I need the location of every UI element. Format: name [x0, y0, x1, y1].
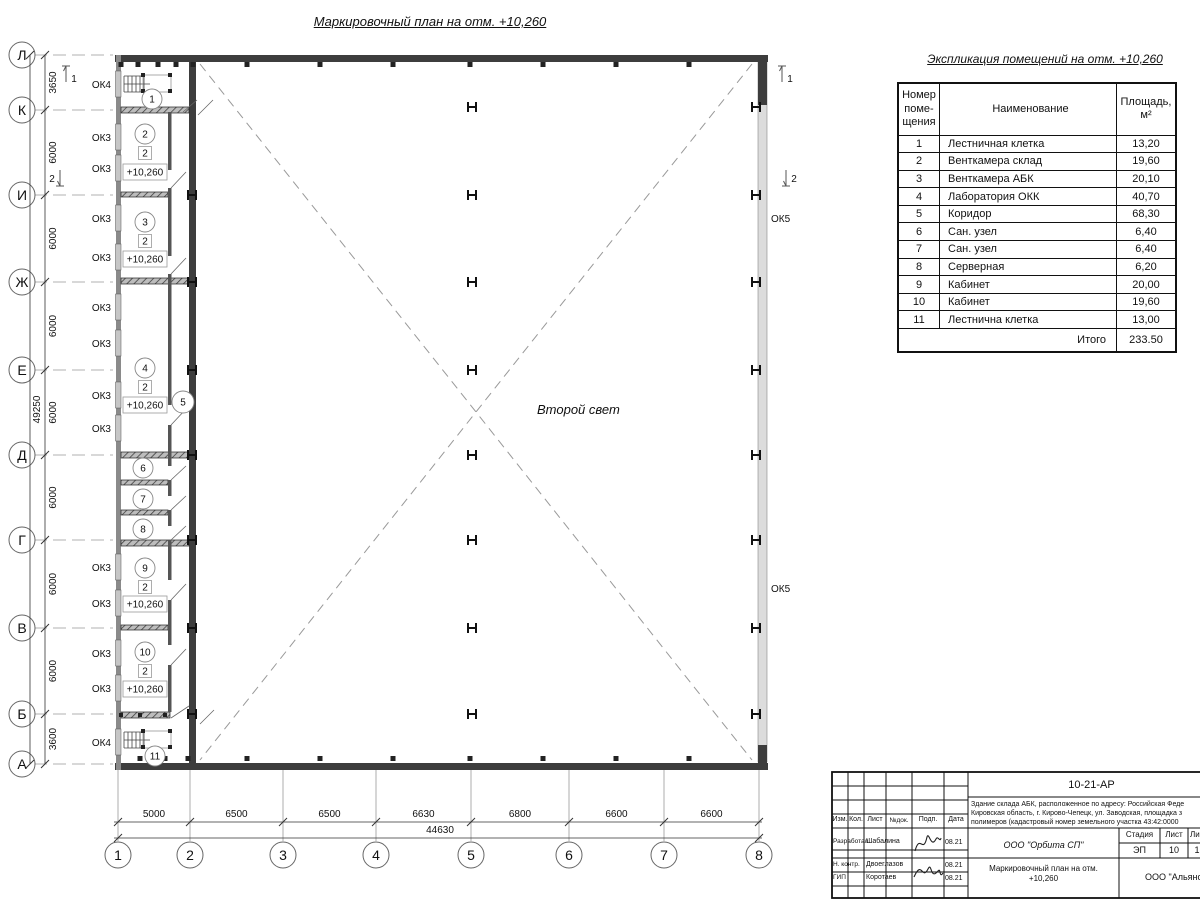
column-square — [136, 62, 141, 67]
section-mark-number: 1 — [787, 74, 793, 85]
axis-bubble-label: Г — [18, 532, 26, 548]
door-leaf — [171, 584, 186, 600]
partition-wall — [121, 192, 168, 197]
doc-number: 10-21-АР — [968, 779, 1200, 791]
dim-text: 6000 — [48, 572, 59, 595]
mezzanine-mark: 2 — [142, 583, 148, 594]
corridor-wall-segment — [168, 188, 172, 256]
dim-text: 6600 — [700, 809, 723, 820]
wall-right-glazing — [758, 62, 767, 762]
second-light-label: Второй свет — [537, 402, 620, 417]
dim-text-total: 44630 — [426, 825, 454, 836]
room-number: 4 — [142, 364, 148, 375]
column-square — [156, 62, 161, 67]
room-number-cell: 6 — [898, 223, 940, 241]
wall — [115, 55, 768, 62]
room-number-cell: 10 — [898, 293, 940, 311]
stage-label: Стадия — [1119, 830, 1160, 839]
dim-text: 3600 — [48, 727, 59, 750]
steel-column-icon — [468, 623, 476, 633]
room-name-cell: Сан. узел — [940, 241, 1117, 259]
column-square — [168, 73, 172, 77]
axis-bubble-label: Ж — [16, 274, 29, 290]
axis-bubble-label: Д — [17, 447, 27, 463]
section-mark-number: 2 — [791, 174, 797, 185]
column-square — [318, 62, 323, 67]
room-number: 2 — [142, 130, 148, 141]
wall — [758, 55, 767, 105]
partition-wall — [121, 510, 168, 515]
window-opening — [116, 205, 122, 231]
stair-opening — [143, 731, 171, 748]
window-opening — [116, 155, 122, 181]
column-square — [168, 89, 172, 93]
table-row: 5Коридор68,30 — [898, 205, 1176, 223]
table-row: 1Лестничная клетка13,20 — [898, 135, 1176, 153]
column-square — [186, 756, 191, 761]
section-mark-number: 2 — [49, 174, 55, 185]
room-name-cell: Кабинет — [940, 276, 1117, 294]
axis-bubble-label: И — [17, 187, 27, 203]
person-name: Шабалина — [866, 838, 910, 846]
column-square — [119, 62, 124, 67]
person-date: 08.21 — [945, 839, 968, 847]
dim-text: 6000 — [48, 401, 59, 424]
room-name-cell: Лаборатория ОКК — [940, 188, 1117, 206]
corridor-wall-segment — [168, 540, 172, 580]
project-desc-line: полимеров (кадастровый номер земельного … — [971, 819, 1200, 827]
sheet-title: Маркировочный план на отм. +10,260 — [968, 864, 1119, 884]
room-area-cell: 20,10 — [1117, 170, 1177, 188]
level-mark: +10,260 — [127, 168, 164, 179]
corridor-wall-segment — [168, 458, 172, 466]
col-header-name: Наименование — [940, 83, 1117, 135]
room-number-cell: 11 — [898, 311, 940, 329]
corridor-wall-segment — [168, 510, 172, 526]
room-number-cell: 8 — [898, 258, 940, 276]
room-area-cell: 19,60 — [1117, 293, 1177, 311]
axis-bubble-label: А — [17, 756, 27, 772]
stamp-header-kol: Кол. — [848, 816, 864, 824]
window-mark-label: ОК3 — [92, 563, 112, 574]
window-mark-label: ОК3 — [92, 133, 112, 144]
column-square — [174, 62, 179, 67]
stair-opening — [143, 75, 171, 92]
window-opening — [116, 675, 122, 701]
project-desc-line: Кировская область, г. Кирово-Чепецк, ул.… — [971, 810, 1200, 818]
room-number-cell: 4 — [898, 188, 940, 206]
floor-plan: ЛКИЖЕДГВБА123456783650600060006000600060… — [0, 0, 830, 900]
room-area-cell: 6,40 — [1117, 241, 1177, 259]
room-name-cell: Лестнична клетка — [940, 311, 1117, 329]
table-row: 7Сан. узел6,40 — [898, 241, 1176, 259]
steel-column-icon — [468, 102, 476, 112]
column-square — [141, 729, 145, 733]
column-square — [687, 756, 692, 761]
room-number-cell: 9 — [898, 276, 940, 294]
corridor-wall-segment — [168, 600, 172, 630]
room-number: 6 — [140, 464, 146, 475]
room-name-cell: Кабинет — [940, 293, 1117, 311]
room-area-cell: 13,00 — [1117, 311, 1177, 329]
sheets-label: Листов — [1190, 830, 1200, 839]
axis-bubble-label: 2 — [186, 847, 194, 863]
column-square — [687, 62, 692, 67]
table-row: 9Кабинет20,00 — [898, 276, 1176, 294]
mezzanine-mark: 2 — [142, 667, 148, 678]
corridor-wall-segment — [168, 480, 172, 496]
level-mark: +10,260 — [127, 600, 164, 611]
corridor-wall-segment — [168, 665, 172, 712]
axis-bubble-label: 4 — [372, 847, 380, 863]
window-mark-label: ОК3 — [92, 339, 112, 350]
window-opening — [116, 590, 122, 616]
col-header-number: Номер поме- щения — [898, 83, 940, 135]
dim-text: 6000 — [48, 314, 59, 337]
door-leaf — [171, 706, 189, 718]
room-area-cell: 6,20 — [1117, 258, 1177, 276]
window-mark-label: ОК3 — [92, 424, 112, 435]
room-number: 7 — [140, 495, 146, 506]
table-row: 2Венткамера склад19,60 — [898, 153, 1176, 171]
room-area-cell: 13,20 — [1117, 135, 1177, 153]
axis-bubble-label: Е — [17, 362, 26, 378]
column-square — [468, 756, 473, 761]
door-leaf — [171, 526, 186, 540]
dim-text: 6000 — [48, 141, 59, 164]
room-number-cell: 3 — [898, 170, 940, 188]
partition-wall — [121, 625, 168, 630]
room-name-cell: Венткамера склад — [940, 153, 1117, 171]
table-row: 8Серверная6,20 — [898, 258, 1176, 276]
table-total-row: Итого 233.50 — [898, 329, 1176, 352]
project-desc-line: Здание склада АБК, расположенное по адре… — [971, 801, 1200, 809]
column-square — [191, 62, 196, 67]
partition-wall — [121, 278, 189, 284]
dim-text: 6000 — [48, 486, 59, 509]
stamp-header-list: Лист — [864, 816, 886, 824]
wall — [115, 763, 768, 770]
column-square — [391, 756, 396, 761]
room-number-cell: 5 — [898, 205, 940, 223]
table-row: 11Лестнична клетка13,00 — [898, 311, 1176, 329]
table-row: 6Сан. узел6,40 — [898, 223, 1176, 241]
window-mark-label: ОК5 — [771, 214, 791, 225]
column-square — [138, 756, 143, 761]
explication-title: Экспликация помещений на отм. +10,260 — [915, 52, 1175, 66]
corridor-wall-segment — [168, 425, 172, 458]
window-mark-label: ОК4 — [92, 80, 112, 91]
window-opening — [116, 71, 122, 97]
dim-text: 6600 — [605, 809, 628, 820]
column-square — [614, 756, 619, 761]
door-leaf — [198, 100, 213, 115]
room-number: 9 — [142, 564, 148, 575]
axis-bubble-label: В — [17, 620, 26, 636]
corridor-wall-segment — [168, 274, 172, 405]
room-number: 10 — [139, 648, 151, 659]
window-mark-label: ОК3 — [92, 214, 112, 225]
axis-bubble-label: 6 — [565, 847, 573, 863]
person-name: Коротаев — [866, 874, 910, 882]
axis-bubble-label: Л — [17, 47, 26, 63]
explication-table: Номер поме- щения Наименование Площадь, … — [897, 82, 1177, 353]
sheet-value: 10 — [1160, 845, 1188, 855]
wall — [758, 745, 767, 770]
stamp-header-ndok: №док. — [886, 817, 912, 824]
steel-column-icon — [468, 450, 476, 460]
window-opening — [116, 124, 122, 150]
axis-bubble-label: 8 — [755, 847, 763, 863]
window-opening — [116, 640, 122, 666]
column-square — [168, 745, 172, 749]
mezzanine-mark: 2 — [142, 149, 148, 160]
door-leaf — [200, 710, 214, 724]
steel-column-icon — [468, 277, 476, 287]
door-leaf — [171, 649, 186, 665]
room-name-cell: Серверная — [940, 258, 1117, 276]
room-number-cell: 1 — [898, 135, 940, 153]
axis-bubble-label: 7 — [660, 847, 668, 863]
dim-text: 6630 — [412, 809, 435, 820]
room-name-cell: Лестничная клетка — [940, 135, 1117, 153]
window-mark-label: ОК5 — [771, 584, 791, 595]
mezzanine-mark: 2 — [142, 237, 148, 248]
column-square — [119, 713, 123, 717]
level-mark: +10,260 — [127, 685, 164, 696]
partition-wall — [121, 540, 189, 546]
table-row: 10Кабинет19,60 — [898, 293, 1176, 311]
column-square — [138, 713, 142, 717]
window-mark-label: ОК4 — [92, 738, 112, 749]
column-square — [541, 62, 546, 67]
corridor-wall-segment — [168, 630, 172, 645]
level-mark: +10,260 — [127, 255, 164, 266]
column-square — [614, 62, 619, 67]
person-date: 08.21 — [945, 875, 968, 883]
person-date: 08.21 — [945, 862, 968, 870]
column-square — [245, 756, 250, 761]
total-value: 233.50 — [1117, 329, 1177, 352]
table-row: 4Лаборатория ОКК40,70 — [898, 188, 1176, 206]
steel-column-icon — [468, 365, 476, 375]
dim-text: 6500 — [318, 809, 341, 820]
steel-column-icon — [468, 709, 476, 719]
col-header-area: Площадь, м² — [1117, 83, 1177, 135]
signature-icon — [912, 829, 943, 856]
dim-text-total: 49250 — [32, 395, 43, 423]
window-mark-label: ОК3 — [92, 649, 112, 660]
partition-wall — [121, 480, 168, 485]
room-name-cell: Сан. узел — [940, 223, 1117, 241]
stamp-header-data: Дата — [944, 816, 968, 824]
stage-value: ЭП — [1119, 845, 1160, 855]
window-mark-label: ОК3 — [92, 391, 112, 402]
level-mark: +10,260 — [127, 401, 164, 412]
corridor-wall-segment — [168, 112, 172, 170]
design-org: ООО "Орбита СП" — [968, 840, 1119, 850]
axis-bubble-label: 1 — [114, 847, 122, 863]
window-opening — [116, 294, 122, 320]
stamp-header-izm: Изм. — [832, 816, 848, 824]
dim-text: 6800 — [509, 809, 532, 820]
total-label: Итого — [898, 329, 1117, 352]
room-name-cell: Коридор — [940, 205, 1117, 223]
column-square — [141, 745, 145, 749]
window-mark-label: ОК3 — [92, 303, 112, 314]
room-number: 11 — [150, 752, 161, 763]
window-mark-label: ОК3 — [92, 599, 112, 610]
room-name-cell: Венткамера АБК — [940, 170, 1117, 188]
room-area-cell: 19,60 — [1117, 153, 1177, 171]
mezzanine-mark: 2 — [142, 383, 148, 394]
room-number: 8 — [140, 525, 146, 536]
window-opening — [116, 554, 122, 580]
column-square — [468, 62, 473, 67]
dim-text: 6000 — [48, 227, 59, 250]
window-opening — [116, 330, 122, 356]
column-square — [541, 756, 546, 761]
door-leaf — [171, 466, 186, 480]
window-opening — [116, 415, 122, 441]
dim-text: 3650 — [48, 71, 59, 94]
column-square — [245, 62, 250, 67]
window-opening — [116, 244, 122, 270]
room-number: 5 — [180, 398, 186, 409]
room-area-cell: 20,00 — [1117, 276, 1177, 294]
window-opening — [116, 382, 122, 408]
door-leaf — [171, 172, 186, 188]
person-name: Двоеглазов — [866, 861, 912, 869]
room-number: 1 — [149, 95, 155, 106]
room-number-cell: 7 — [898, 241, 940, 259]
table-header-row: Номер поме- щения Наименование Площадь, … — [898, 83, 1176, 135]
window-mark-label: ОК3 — [92, 684, 112, 695]
window-mark-label: ОК3 — [92, 164, 112, 175]
room-area-cell: 68,30 — [1117, 205, 1177, 223]
room-area-cell: 6,40 — [1117, 223, 1177, 241]
column-square — [163, 713, 167, 717]
wall — [189, 62, 196, 763]
room-number-cell: 2 — [898, 153, 940, 171]
axis-bubble-label: К — [18, 102, 27, 118]
dim-text: 6500 — [225, 809, 248, 820]
column-square — [391, 62, 396, 67]
stamp-header-podp: Подп. — [912, 816, 944, 824]
partition-wall — [121, 712, 170, 718]
room-number: 3 — [142, 218, 148, 229]
table-row: 3Венткамера АБК20,10 — [898, 170, 1176, 188]
column-square — [168, 729, 172, 733]
section-mark-number: 1 — [71, 74, 77, 85]
partition-wall — [121, 452, 189, 458]
room-area-cell: 40,70 — [1117, 188, 1177, 206]
signature-icon — [912, 857, 944, 884]
axis-bubble-label: 5 — [467, 847, 475, 863]
axis-bubble-label: 3 — [279, 847, 287, 863]
drawing-sheet: Маркировочный план на отм. +10,260 ЛКИЖЕ… — [0, 0, 1200, 900]
window-mark-label: ОК3 — [92, 253, 112, 264]
dim-text: 6000 — [48, 659, 59, 682]
dim-text: 5000 — [143, 809, 166, 820]
sheets-value: 1 — [1190, 845, 1200, 855]
steel-column-icon — [468, 535, 476, 545]
sheet-label: Лист — [1160, 830, 1188, 839]
window-opening — [116, 729, 122, 755]
door-leaf — [171, 496, 186, 510]
column-square — [318, 756, 323, 761]
column-square — [141, 73, 145, 77]
door-leaf — [171, 258, 186, 274]
steel-column-icon — [468, 190, 476, 200]
contractor-org: ООО "Альянс — [1145, 872, 1200, 882]
axis-bubble-label: Б — [17, 706, 26, 722]
